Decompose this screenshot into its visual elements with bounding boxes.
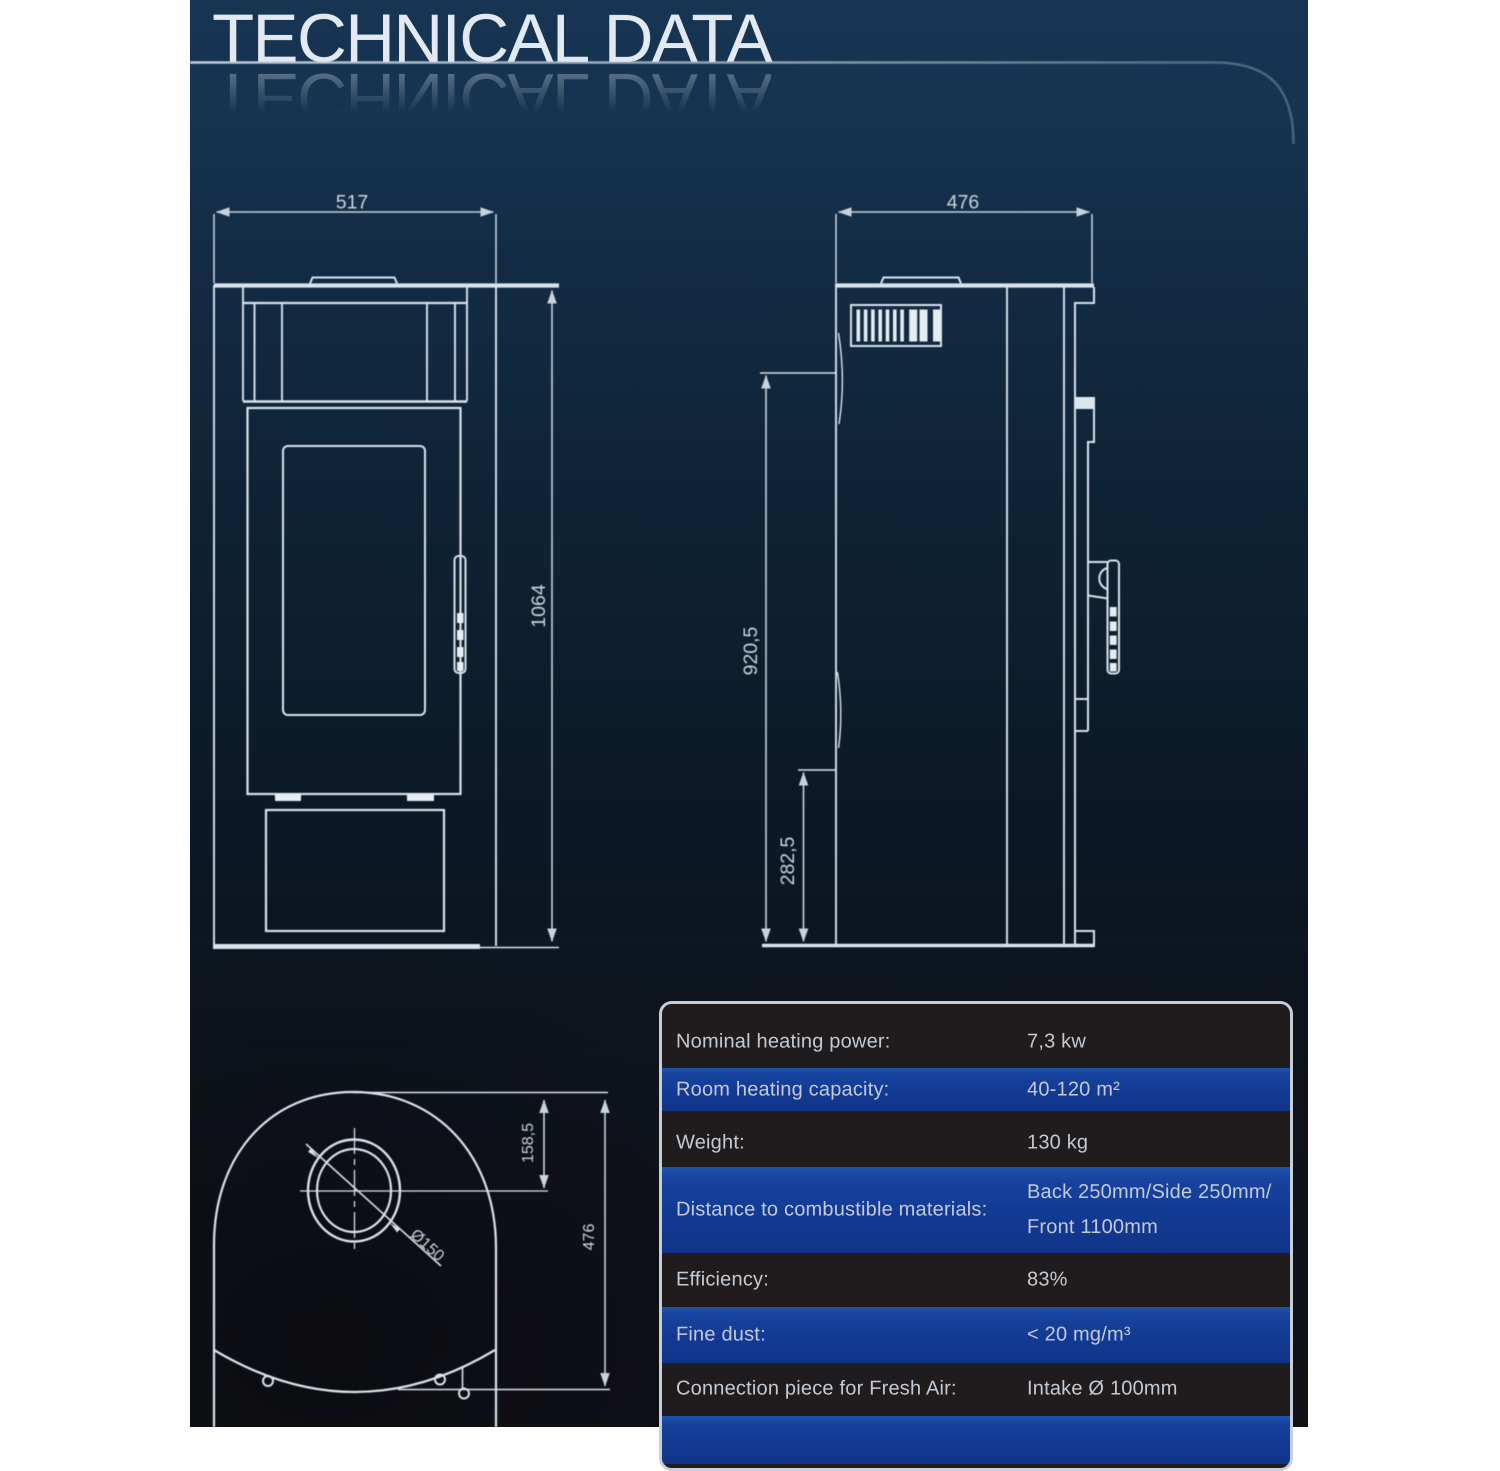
svg-text:517: 517: [336, 192, 369, 214]
svg-text:Ø150: Ø150: [407, 1226, 448, 1265]
svg-text:158,5: 158,5: [520, 1123, 537, 1163]
svg-text:920,5: 920,5: [740, 626, 762, 675]
svg-text:476: 476: [947, 192, 980, 214]
svg-text:476: 476: [581, 1224, 598, 1251]
svg-text:1064: 1064: [528, 584, 550, 628]
svg-text:282,5: 282,5: [777, 836, 799, 885]
